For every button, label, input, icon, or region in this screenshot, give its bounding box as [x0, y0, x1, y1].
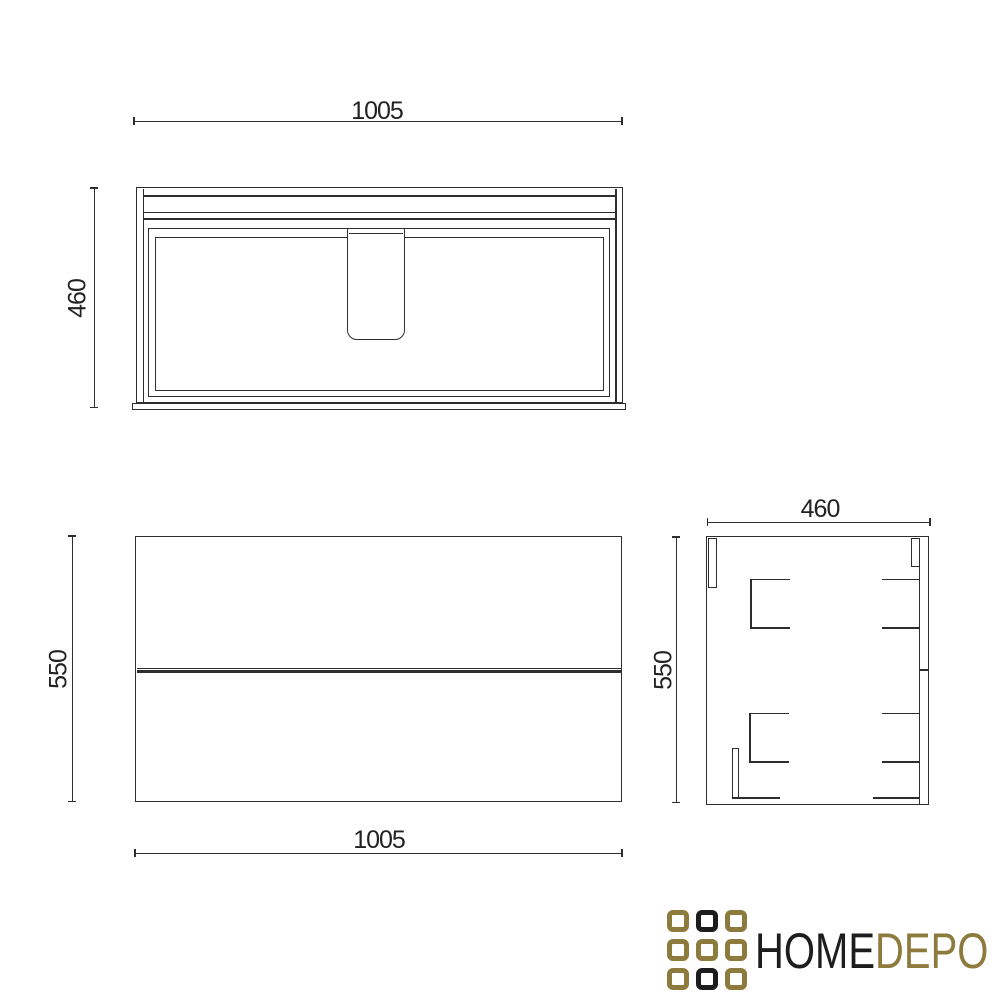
side-lower-slide-front-top-line	[749, 713, 789, 715]
side-hanging-rail-back	[911, 538, 920, 567]
side-upper-slide-back-bottom-line	[882, 627, 919, 629]
front-drawer-divider-thick-line	[137, 670, 621, 673]
plan-depth-dim-tick-top	[90, 187, 98, 188]
logo-square	[667, 968, 689, 990]
logo-square	[725, 968, 747, 990]
side-height-dim-label: 550	[652, 630, 677, 710]
side-lower-slide-front-vertical-line	[749, 713, 751, 763]
side-bottom-back-line	[873, 797, 919, 799]
logo-wordmark: HOMEDEPO	[755, 926, 988, 976]
logo-square	[667, 939, 689, 961]
plan-right-wall-line	[615, 189, 616, 402]
side-upper-slide-front-vertical-line	[750, 579, 752, 629]
side-depth-dim-tick-right	[929, 518, 930, 526]
logo-square	[667, 910, 689, 932]
front-width-dim-label: 1005	[329, 828, 429, 853]
side-depth-dim-tick-left	[707, 518, 708, 526]
side-bottom-front-line	[732, 797, 781, 799]
side-lower-slide-back-top-line	[882, 713, 919, 715]
plan-rail-line-1	[144, 195, 616, 196]
logo-square	[725, 910, 747, 932]
plan-depth-dim-line	[94, 188, 95, 408]
side-upper-slide-front-top-line	[750, 579, 790, 581]
front-outline	[135, 536, 622, 802]
plan-width-dim-label: 1005	[327, 99, 427, 124]
logo-squares-icon	[667, 910, 747, 990]
plan-width-dim-tick-right	[621, 117, 622, 125]
logo-wordmark-secondary: DEPO	[875, 923, 988, 979]
front-drawer-divider-thin-line	[137, 668, 621, 669]
front-height-dim-tick-bottom	[68, 801, 76, 802]
side-back-panel-joint-line	[920, 669, 928, 671]
side-hanging-rail-front	[708, 538, 717, 588]
front-width-dim-tick-right	[621, 849, 622, 857]
side-lower-slide-back-bottom-line	[882, 761, 919, 763]
plan-sink-cutout	[347, 228, 405, 340]
side-height-dim-tick-bottom	[672, 802, 680, 803]
logo-square	[696, 939, 718, 961]
side-height-dim-tick-top	[672, 536, 680, 537]
technical-drawing-sheet: 1005 460 550 1005	[0, 0, 1000, 1000]
side-outline	[706, 536, 929, 805]
plan-depth-dim-tick-bottom	[90, 407, 98, 408]
plan-rail-line-3	[144, 218, 616, 220]
plan-depth-dim-label: 460	[66, 258, 91, 338]
plan-width-dim-tick-left	[133, 117, 134, 125]
side-bottom-bracket	[732, 748, 740, 799]
logo-square	[696, 910, 718, 932]
plan-left-wall-line	[143, 189, 144, 402]
plan-rail-line-2	[144, 212, 616, 213]
plan-front-lip	[132, 403, 626, 410]
plan-sink-cutout-rim-line	[349, 233, 404, 234]
logo-square	[696, 968, 718, 990]
logo-wordmark-primary: HOME	[755, 923, 875, 979]
side-depth-dim-label: 460	[770, 497, 870, 522]
front-height-dim-tick-top	[68, 535, 76, 536]
front-width-dim-tick-left	[134, 849, 135, 857]
side-upper-slide-back-top-line	[882, 579, 919, 581]
side-upper-slide-front-bottom-line	[750, 627, 790, 629]
side-lower-slide-front-bottom-line	[749, 761, 789, 763]
front-height-dim-label: 550	[47, 629, 72, 709]
logo-square	[725, 939, 747, 961]
